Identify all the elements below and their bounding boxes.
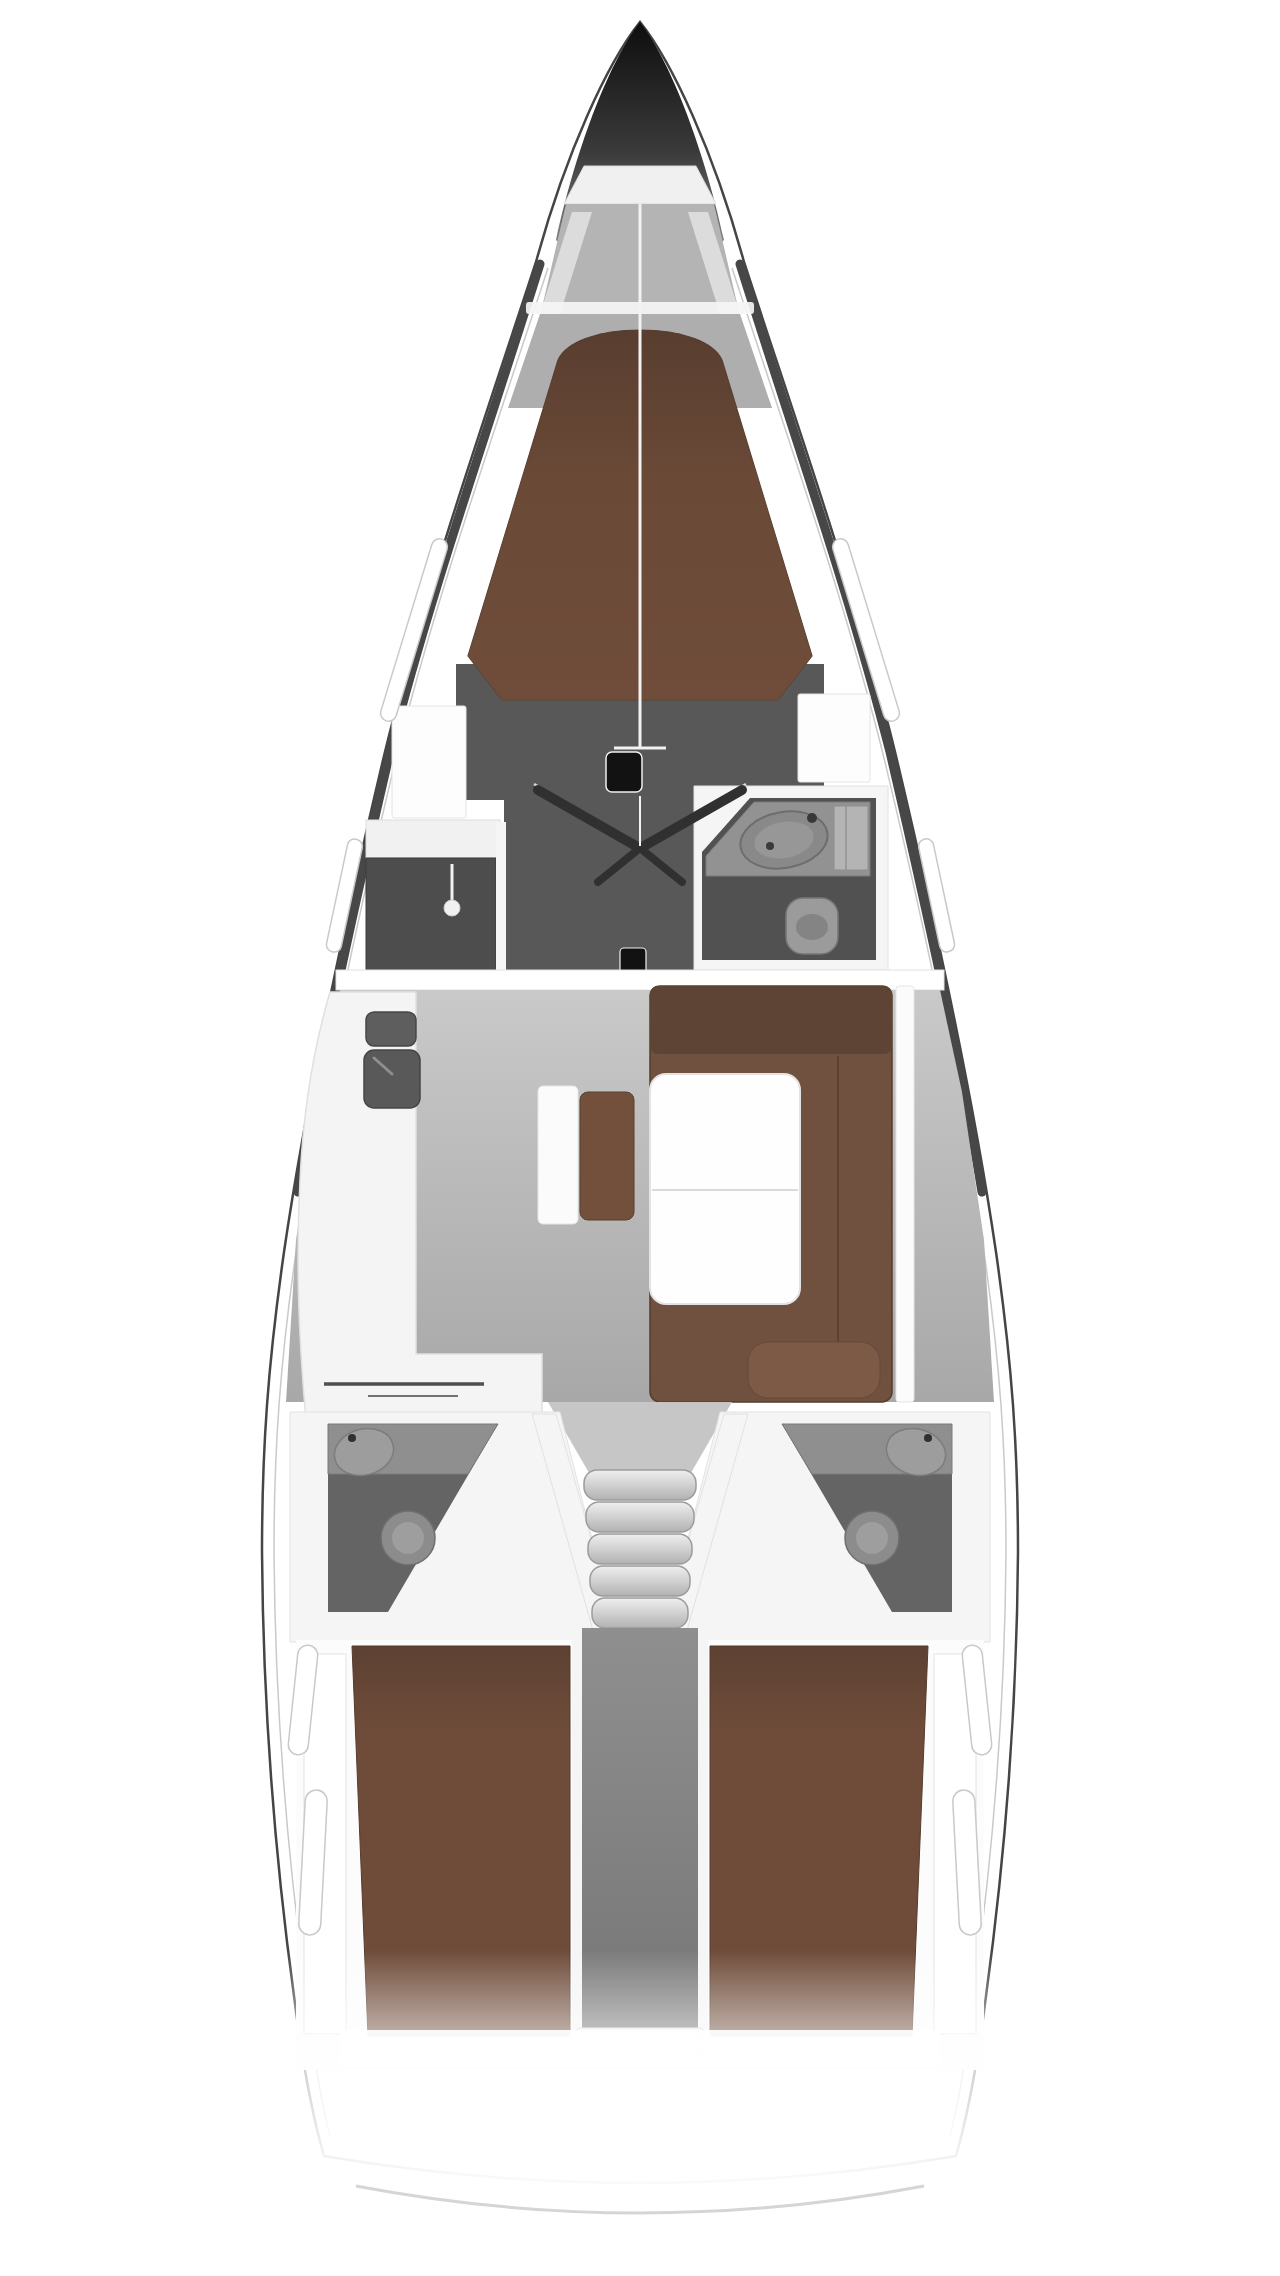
floorplan-svg	[0, 0, 1280, 2276]
forward-head-faucet	[807, 813, 817, 823]
aft-head-starboard-toilet-bowl	[856, 1522, 888, 1554]
companionway-step-3	[588, 1534, 692, 1564]
yacht-floorplan-page	[0, 0, 1280, 2276]
galley-stove	[366, 1012, 416, 1046]
port-locker	[392, 706, 466, 818]
wardrobe-counter	[366, 820, 500, 858]
mast-step	[606, 752, 642, 792]
wardrobe	[366, 858, 496, 972]
anchor-locker-bulkhead	[564, 166, 716, 204]
wardrobe-pull-knob	[444, 900, 460, 916]
bench-seat	[580, 1092, 634, 1220]
starboard-locker	[798, 694, 870, 782]
galley-sink	[364, 1050, 420, 1108]
sofa-side-wall	[896, 986, 914, 1402]
aft-head-starboard-faucet	[924, 1434, 932, 1442]
companionway-step-4	[590, 1566, 690, 1596]
sofa-seat-cushion	[748, 1342, 880, 1398]
stern-fade	[140, 1950, 1140, 2276]
aft-head-port-toilet-bowl	[392, 1522, 424, 1554]
forward-head-drain	[766, 842, 774, 850]
companionway-step-2	[586, 1502, 694, 1532]
companionway-step-5	[592, 1598, 688, 1628]
companionway-step-1	[584, 1470, 696, 1500]
forward-head-cabinet	[834, 806, 868, 870]
sofa-back-cushion	[650, 986, 892, 1054]
bench-backrest	[538, 1086, 578, 1224]
corridor-wall	[496, 822, 506, 972]
forward-head-toilet-bowl	[796, 914, 828, 940]
aft-head-port-faucet	[348, 1434, 356, 1442]
